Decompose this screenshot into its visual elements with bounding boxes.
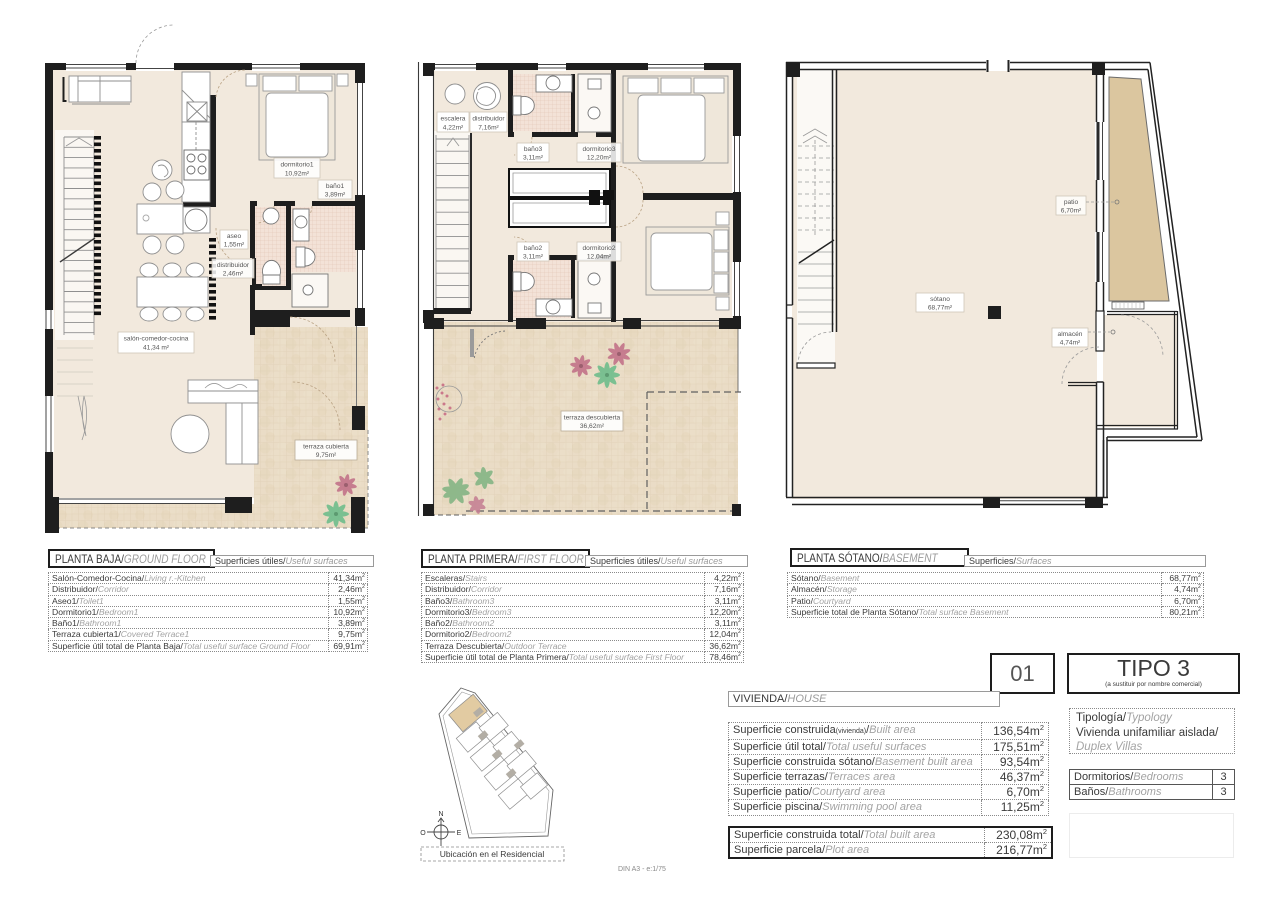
svg-text:3,11m²: 3,11m² xyxy=(523,254,544,261)
svg-text:terraza descubierta: terraza descubierta xyxy=(564,415,621,422)
svg-text:4,22m²: 4,22m² xyxy=(443,125,464,132)
svg-text:dormitorio1: dormitorio1 xyxy=(281,162,314,169)
svg-text:O: O xyxy=(420,830,426,837)
svg-text:baño2: baño2 xyxy=(524,245,543,252)
svg-text:12,04m²: 12,04m² xyxy=(587,254,612,261)
svg-text:68,77m²: 68,77m² xyxy=(928,305,953,312)
svg-text:1,55m²: 1,55m² xyxy=(224,242,245,249)
svg-text:dormitorio3: dormitorio3 xyxy=(583,146,616,153)
svg-text:baño3: baño3 xyxy=(524,146,543,153)
svg-text:12,20m²: 12,20m² xyxy=(587,155,612,162)
svg-text:3,89m²: 3,89m² xyxy=(325,192,346,199)
svg-text:aseo: aseo xyxy=(227,233,242,240)
svg-text:distribuidor: distribuidor xyxy=(472,116,505,123)
svg-text:baño1: baño1 xyxy=(326,183,345,190)
svg-text:dormitorio2: dormitorio2 xyxy=(583,245,616,252)
svg-text:sótano: sótano xyxy=(930,296,950,303)
svg-text:E: E xyxy=(457,830,462,837)
svg-text:patio: patio xyxy=(1064,199,1079,206)
svg-text:Ubicación en el Residencial: Ubicación en el Residencial xyxy=(440,849,545,859)
svg-text:7,16m²: 7,16m² xyxy=(478,125,499,132)
svg-text:distribuidor: distribuidor xyxy=(217,262,250,269)
svg-text:escalera: escalera xyxy=(441,116,466,123)
svg-text:salón-comedor-cocina: salón-comedor-cocina xyxy=(124,336,189,343)
svg-text:DIN A3 - e:1/75: DIN A3 - e:1/75 xyxy=(618,866,666,873)
svg-text:36,62m²: 36,62m² xyxy=(580,423,605,430)
svg-text:N: N xyxy=(438,811,443,818)
svg-text:terraza cubierta: terraza cubierta xyxy=(303,444,349,451)
svg-text:41,34 m²: 41,34 m² xyxy=(143,345,170,352)
svg-text:2,46m²: 2,46m² xyxy=(223,271,244,278)
svg-text:almacén: almacén xyxy=(1058,331,1083,338)
svg-text:10,92m²: 10,92m² xyxy=(285,171,310,178)
svg-text:4,74m²: 4,74m² xyxy=(1060,340,1081,347)
svg-text:9,75m²: 9,75m² xyxy=(316,452,337,459)
svg-text:3,11m²: 3,11m² xyxy=(523,155,544,162)
svg-text:6,70m²: 6,70m² xyxy=(1061,208,1082,215)
